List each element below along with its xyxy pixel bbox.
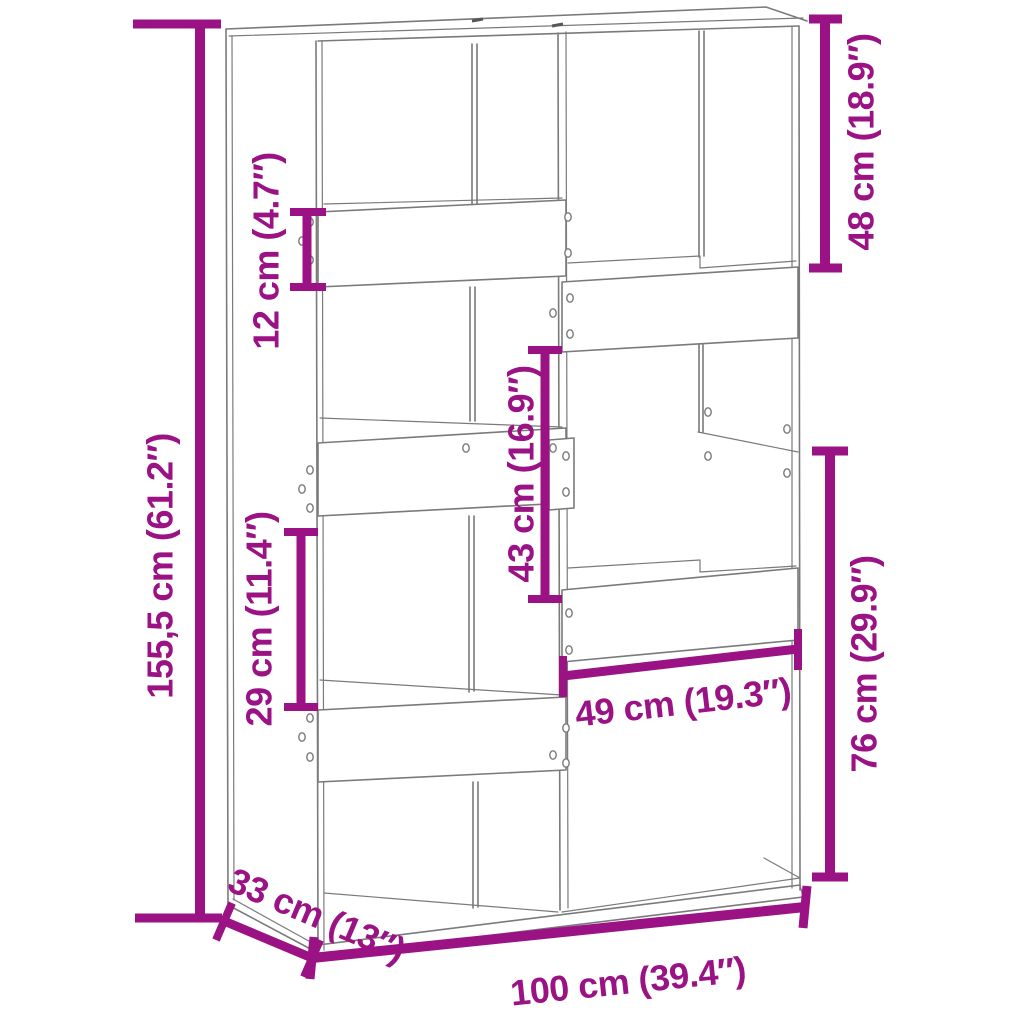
product-dimension-image: 155,5 cm (61.2″) 12 cm (4.7″) 48 cm (18.… bbox=[0, 0, 1024, 1024]
dimension-width-label: 100 cm (39.4″) bbox=[508, 948, 747, 1013]
divider-low-left bbox=[469, 516, 474, 692]
dimension-top-right-compartment-label: 48 cm (18.9″) bbox=[841, 34, 882, 251]
dimension-lower-right-width-label: 49 cm (19.3″) bbox=[573, 669, 793, 734]
dimension-lower-right-section: 76 cm (29.9″) bbox=[812, 451, 885, 877]
dimension-diagram: 155,5 cm (61.2″) 12 cm (4.7″) 48 cm (18.… bbox=[0, 0, 1024, 1024]
dimension-lower-right-section-label: 76 cm (29.9″) bbox=[844, 556, 885, 773]
shelf-board-left-3 bbox=[318, 697, 566, 782]
left-inner-edge bbox=[232, 36, 234, 900]
shelf-board-right-2-top bbox=[568, 560, 796, 572]
dimension-lower-left-compartment-label: 29 cm (11.4″) bbox=[239, 512, 280, 727]
dimension-annotations: 155,5 cm (61.2″) 12 cm (4.7″) 48 cm (18.… bbox=[133, 19, 885, 1014]
top-mark bbox=[472, 19, 483, 21]
dimension-total-height-label: 155,5 cm (61.2″) bbox=[140, 433, 181, 698]
top-mark bbox=[552, 24, 563, 26]
shelf-board-left-1 bbox=[318, 200, 566, 287]
dimension-top-right-compartment: 48 cm (18.9″) bbox=[809, 19, 882, 268]
divider-top-right bbox=[699, 31, 704, 257]
left-outer-edge bbox=[226, 29, 228, 905]
dimension-top-shelf-board-label: 12 cm (4.7″) bbox=[246, 152, 287, 349]
floor-corner bbox=[764, 858, 800, 878]
dimension-middle-compartment-label: 43 cm (16.9″) bbox=[501, 366, 542, 583]
divider-mid-right bbox=[699, 344, 703, 432]
shelf-board-right-2 bbox=[562, 568, 798, 662]
shelf-board-right-1-top bbox=[568, 256, 796, 268]
top-back-edge bbox=[226, 7, 807, 29]
front-right-stile bbox=[799, 26, 800, 890]
top-slab-edge bbox=[229, 18, 803, 36]
dimension-total-height: 155,5 cm (61.2″) bbox=[133, 24, 222, 918]
shelf-board-right-1 bbox=[562, 267, 798, 352]
dimension-top-shelf-board: 12 cm (4.7″) bbox=[246, 152, 327, 349]
divider-top-left bbox=[472, 44, 477, 206]
shelf-back-edge-right bbox=[698, 432, 798, 452]
divider-bottom-left bbox=[473, 782, 478, 908]
dimension-lower-left-compartment: 29 cm (11.4″) bbox=[239, 512, 319, 727]
divider-mid-left bbox=[470, 287, 475, 421]
floor-left bbox=[324, 893, 558, 912]
shelf-board-left-3-top bbox=[320, 680, 562, 695]
